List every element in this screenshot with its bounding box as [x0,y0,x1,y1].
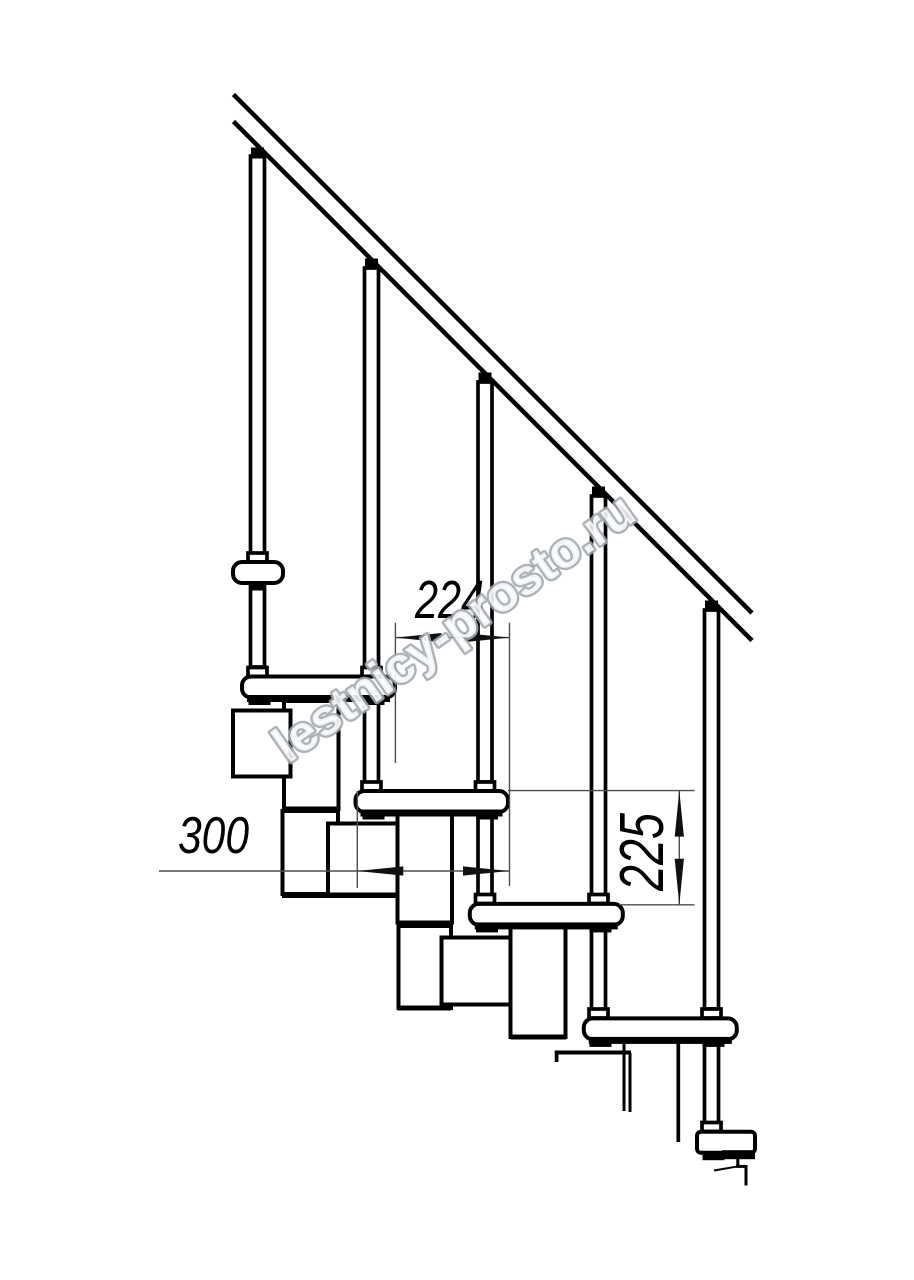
svg-text:300: 300 [178,807,249,865]
svg-text:225: 225 [608,813,677,892]
